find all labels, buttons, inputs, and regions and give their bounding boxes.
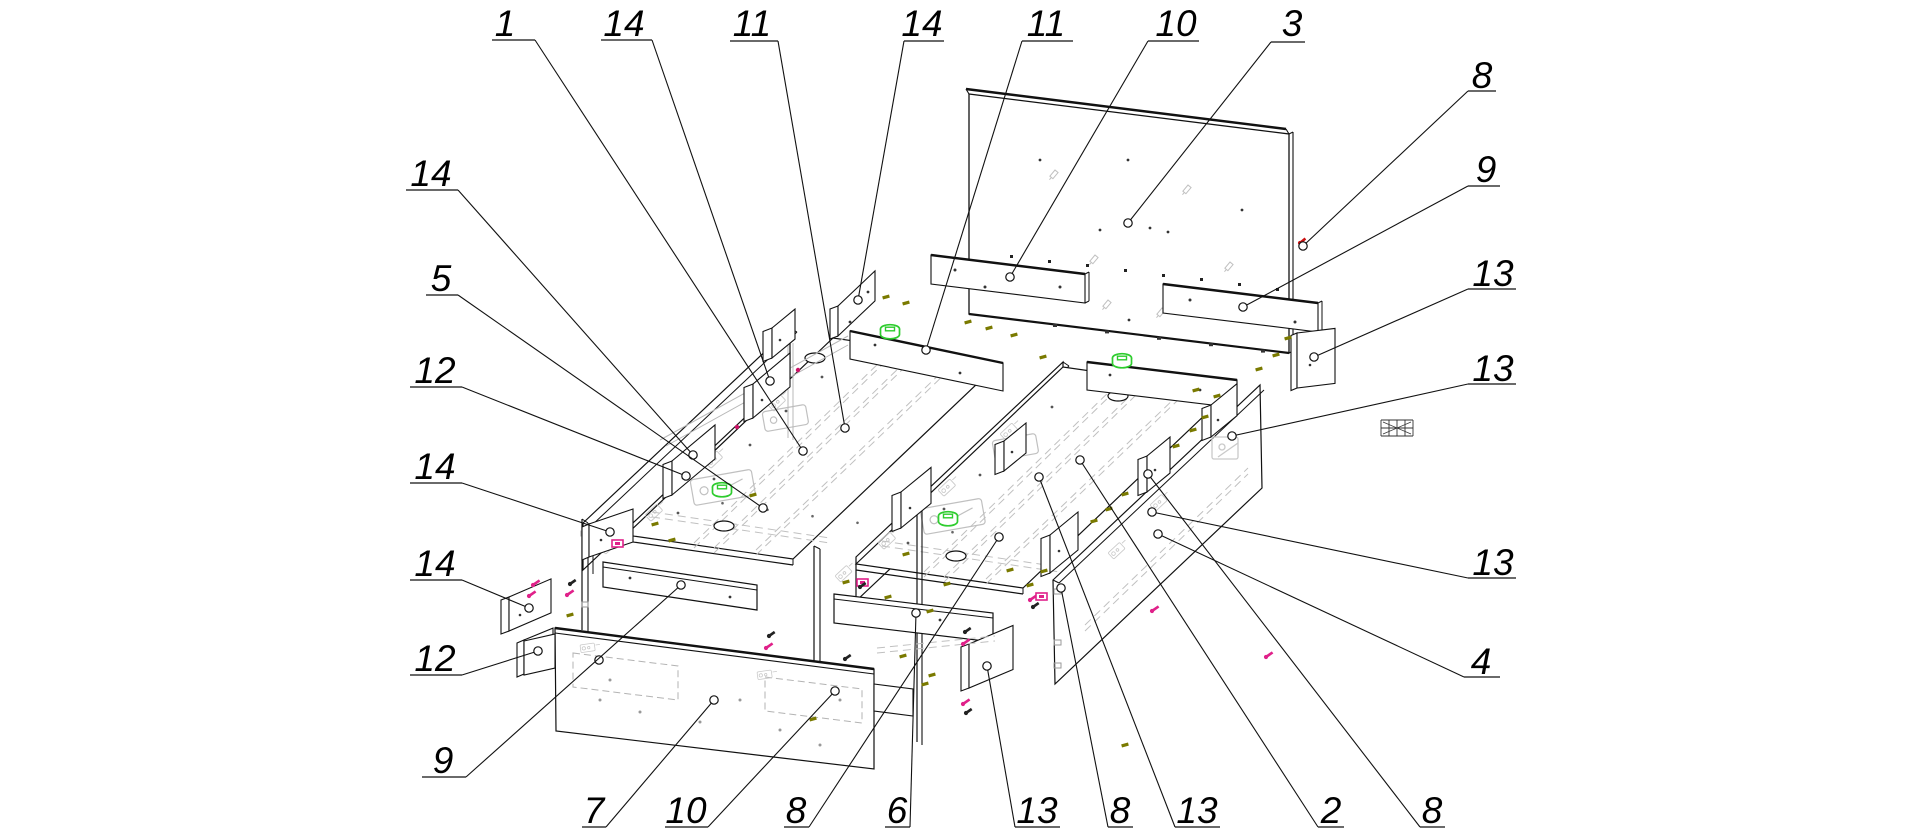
svg-text:13: 13 [1016,790,1058,831]
svg-text:4: 4 [1471,641,1492,682]
svg-text:8: 8 [1472,55,1493,96]
svg-text:10: 10 [665,790,707,831]
svg-text:14: 14 [414,543,455,584]
svg-text:6: 6 [887,790,908,831]
svg-text:8: 8 [1422,790,1443,831]
svg-text:2: 2 [1320,790,1342,831]
svg-text:12: 12 [414,638,456,679]
svg-text:9: 9 [433,740,454,781]
svg-text:1: 1 [495,3,516,44]
svg-text:5: 5 [431,258,452,299]
svg-text:10: 10 [1155,3,1197,44]
svg-text:14: 14 [414,446,455,487]
svg-text:11: 11 [1027,3,1065,44]
svg-text:13: 13 [1472,542,1514,583]
svg-text:8: 8 [786,790,807,831]
svg-text:9: 9 [1476,149,1497,190]
svg-text:14: 14 [901,3,942,44]
svg-text:13: 13 [1472,253,1514,294]
svg-text:14: 14 [603,3,644,44]
svg-text:14: 14 [410,153,451,194]
svg-text:13: 13 [1176,790,1218,831]
svg-text:7: 7 [584,790,606,831]
svg-text:8: 8 [1110,790,1131,831]
svg-text:13: 13 [1472,348,1514,389]
svg-text:11: 11 [733,3,771,44]
svg-text:3: 3 [1282,3,1303,44]
svg-text:12: 12 [414,350,456,391]
